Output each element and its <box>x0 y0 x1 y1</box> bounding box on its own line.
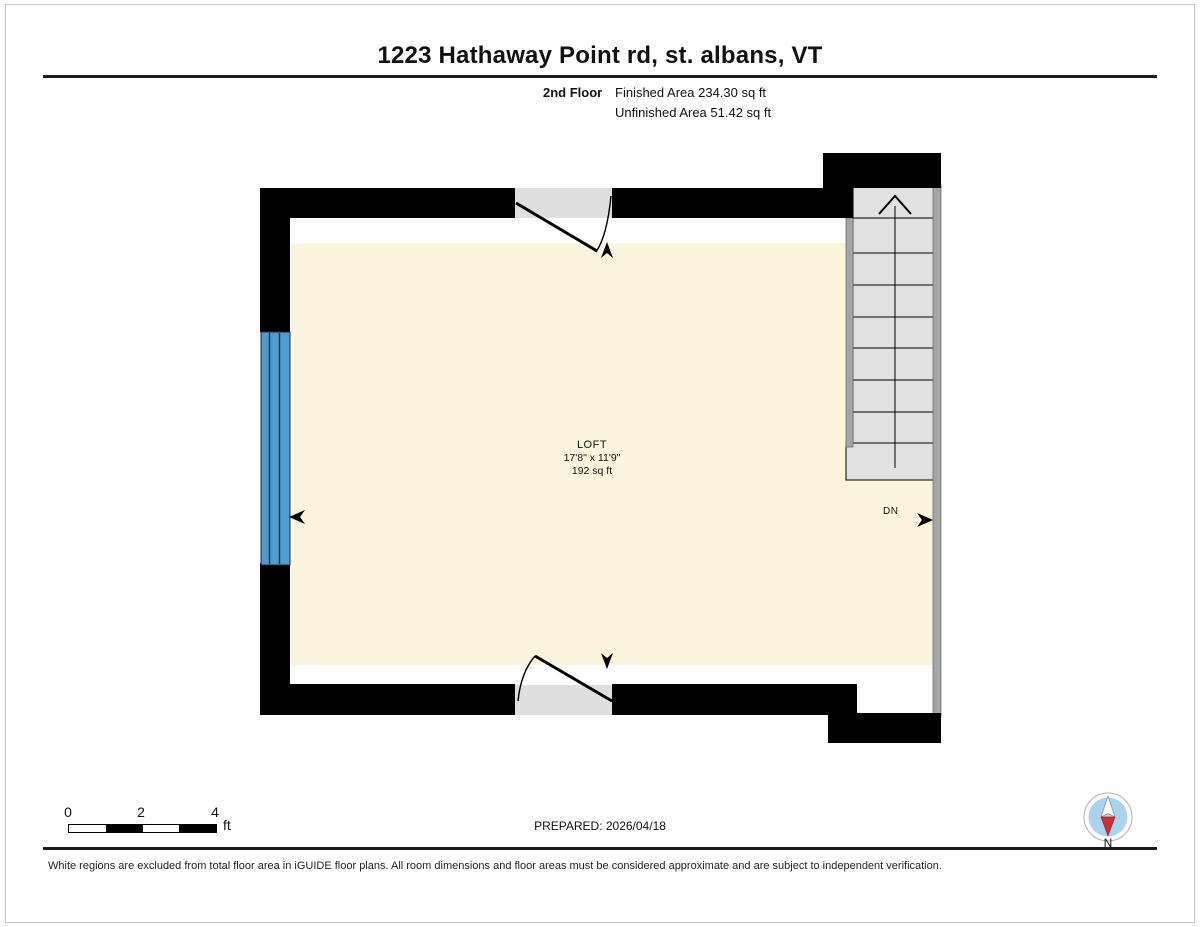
down-stairs-label: DN <box>883 506 898 517</box>
scale-tick-0: 0 <box>62 804 74 820</box>
wall-bottom-right <box>612 684 857 715</box>
prepared-date: PREPARED: 2026/04/18 <box>0 819 1200 833</box>
scale-tick-2: 2 <box>135 804 147 820</box>
bottom-door-opening <box>515 685 612 715</box>
stair-bottom-tread <box>846 443 935 480</box>
wall-bottom-left <box>260 684 515 715</box>
wall-top-left <box>260 188 515 218</box>
right-thin-wall <box>933 185 941 717</box>
floor-plan-page: 1223 Hathaway Point rd, st. albans, VT 2… <box>0 0 1200 927</box>
stair-run <box>853 187 935 443</box>
wall-stair-bottom-bump <box>828 713 941 743</box>
top-door-opening <box>515 188 612 218</box>
wall-left-upper <box>260 188 290 332</box>
disclaimer-text: White regions are excluded from total fl… <box>48 860 942 872</box>
scale-tick-4: 4 <box>209 804 221 820</box>
wall-stair-top-bump <box>823 153 941 188</box>
room-area: 192 sq ft <box>492 465 692 478</box>
staircase <box>846 187 935 480</box>
wall-top-right <box>612 188 853 218</box>
footer-divider <box>43 847 1157 850</box>
stair-left-thin-wall <box>846 218 853 447</box>
window <box>261 332 290 565</box>
room-label: LOFT 17'8" x 11'9" 192 sq ft <box>492 439 692 478</box>
room-name: LOFT <box>492 439 692 452</box>
window-pane <box>261 332 290 565</box>
room-dimensions: 17'8" x 11'9" <box>492 452 692 465</box>
